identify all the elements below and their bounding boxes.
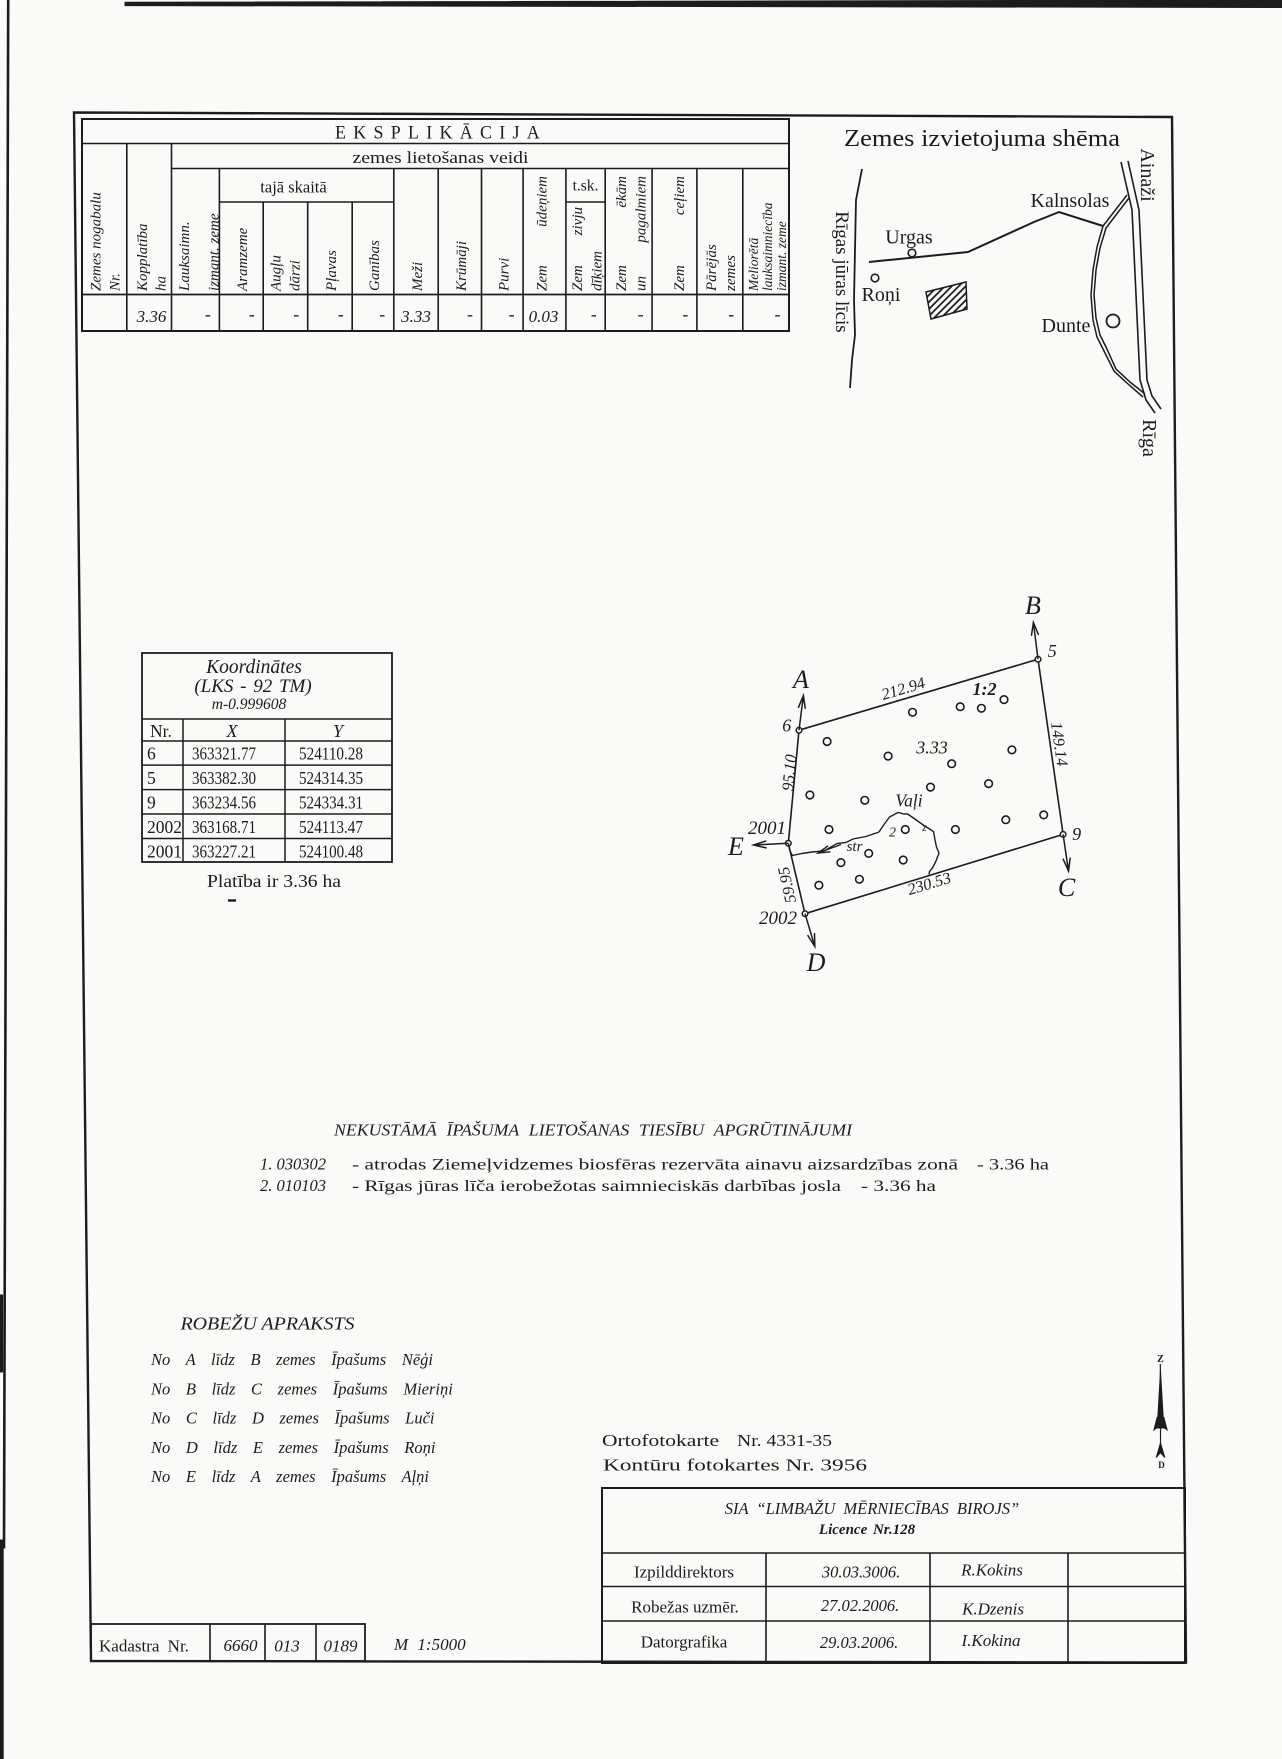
- svg-text:X: X: [226, 721, 239, 741]
- svg-text:Meži: Meži: [410, 262, 426, 292]
- svg-text:363168.71: 363168.71: [192, 817, 256, 837]
- svg-text:363227.21: 363227.21: [192, 842, 256, 862]
- svg-text:-: -: [205, 304, 211, 324]
- svg-text:524113.47: 524113.47: [299, 817, 363, 837]
- svg-text:ROBEŽU APRAKSTS: ROBEŽU APRAKSTS: [179, 1314, 354, 1334]
- svg-text:C: C: [1058, 873, 1076, 902]
- svg-text:1. 030302: 1. 030302: [260, 1155, 326, 1174]
- svg-text:Izpilddirektors: Izpilddirektors: [634, 1563, 734, 1582]
- svg-text:-: -: [682, 304, 688, 324]
- svg-text:27.02.2006.: 27.02.2006.: [821, 1596, 899, 1615]
- svg-text:3.33: 3.33: [400, 307, 431, 326]
- svg-text:363321.77: 363321.77: [192, 744, 256, 764]
- svg-text:6660: 6660: [224, 1636, 259, 1655]
- svg-text:No E līdz A zemes Īpašums: No E līdz A zemes Īpašums Aļņi: [150, 1467, 429, 1486]
- svg-text:t.sk.: t.sk.: [573, 178, 599, 195]
- svg-text:59.95: 59.95: [775, 865, 800, 904]
- svg-text:dārzi: dārzi: [288, 260, 304, 291]
- svg-text:363382.30: 363382.30: [192, 768, 256, 788]
- svg-text:ceļiem: ceļiem: [672, 176, 688, 215]
- svg-text:3.33: 3.33: [915, 738, 948, 758]
- svg-text:2002: 2002: [147, 817, 182, 837]
- svg-text:-: -: [379, 304, 385, 324]
- svg-text:Platība ir 3.36 ha: Platība ir 3.36 ha: [207, 871, 341, 891]
- svg-text:Dunte: Dunte: [1042, 315, 1091, 337]
- svg-text:Rīgas jūras līcis: Rīgas jūras līcis: [831, 211, 852, 332]
- svg-text:Pārējās: Pārējās: [704, 244, 720, 292]
- svg-text:No C līdz D zemes Īpašums: No C līdz D zemes Īpašums Luči: [150, 1409, 435, 1428]
- svg-text:Licence Nr.128: Licence Nr.128: [818, 1522, 916, 1538]
- svg-text:izmant. zeme: izmant. zeme: [207, 213, 223, 291]
- svg-text:-: -: [591, 304, 597, 324]
- svg-text:0189: 0189: [324, 1637, 359, 1656]
- svg-text:No B līdz C zemes Īpašums: No B līdz C zemes Īpašums Mieriņi: [150, 1379, 453, 1398]
- svg-text:NEKUSTĀMĀ ĪPAŠUMA LIETOŠANAS: NEKUSTĀMĀ ĪPAŠUMA LIETOŠANAS TIESĪBU APG…: [333, 1121, 854, 1140]
- svg-text:dīķiem: dīķiem: [590, 251, 606, 291]
- svg-text:0.03: 0.03: [529, 307, 559, 326]
- svg-text:2001: 2001: [748, 818, 786, 839]
- svg-text:Urgas: Urgas: [885, 227, 933, 249]
- svg-text:Koordinātes: Koordinātes: [205, 657, 302, 678]
- svg-text:95.10: 95.10: [779, 754, 800, 792]
- svg-text:izmant. zeme: izmant. zeme: [774, 221, 789, 291]
- svg-text:3.36: 3.36: [136, 307, 167, 326]
- svg-text:1:2: 1:2: [973, 679, 997, 699]
- svg-text:lauksaimniecība: lauksaimniecība: [760, 202, 775, 291]
- svg-text:K.Dzenis: K.Dzenis: [961, 1600, 1024, 1619]
- svg-text:Y: Y: [333, 721, 345, 741]
- svg-text:M 1:5000: M 1:5000: [393, 1635, 466, 1654]
- svg-text:9: 9: [1072, 824, 1081, 844]
- svg-text:R.Kokins: R.Kokins: [960, 1561, 1023, 1580]
- svg-text:Nr. 4331-35: Nr. 4331-35: [737, 1431, 832, 1450]
- svg-text:6: 6: [782, 716, 791, 736]
- svg-text:Kadastra Nr.: Kadastra Nr.: [99, 1637, 189, 1656]
- svg-text:Nr.: Nr.: [108, 273, 124, 292]
- svg-text:Rīga: Rīga: [1138, 419, 1160, 457]
- svg-text:2002: 2002: [759, 908, 798, 929]
- svg-text:(LKS - 92 TM): (LKS - 92 TM): [194, 676, 311, 697]
- svg-text:zemes: zemes: [723, 255, 739, 292]
- svg-text:I.Kokina: I.Kokina: [960, 1631, 1020, 1650]
- svg-text:2. 010103: 2. 010103: [260, 1176, 326, 1195]
- svg-text:Z: Z: [1157, 1354, 1164, 1365]
- svg-text:D: D: [806, 948, 826, 977]
- svg-text:363234.56: 363234.56: [192, 793, 256, 813]
- svg-text:No A līdz B zemes Īpašums: No A līdz B zemes Īpašums Nēģi: [150, 1350, 433, 1369]
- svg-text:E: E: [727, 832, 744, 861]
- svg-text:m-0.999608: m-0.999608: [212, 696, 287, 713]
- svg-text:Zem: Zem: [672, 265, 688, 291]
- svg-text:A: A: [791, 665, 809, 694]
- svg-text:Augļu: Augļu: [269, 255, 285, 292]
- svg-text:SIA “LIMBAŽU MĒRNIECĪBAS BI: SIA “LIMBAŽU MĒRNIECĪBAS BIROJS”: [725, 1499, 1019, 1518]
- svg-text:Zemes izvietojuma shēma: Zemes izvietojuma shēma: [844, 126, 1120, 152]
- svg-text:Zem: Zem: [535, 265, 551, 291]
- svg-text:Lauksaimn.: Lauksaimn.: [177, 221, 193, 292]
- svg-text:6: 6: [147, 744, 156, 764]
- svg-text:-: -: [249, 304, 255, 324]
- svg-text:Zem: Zem: [614, 265, 630, 291]
- svg-text:Kalnsolas: Kalnsolas: [1031, 190, 1110, 212]
- svg-text:Zem: Zem: [570, 265, 586, 291]
- svg-text:Kopplatība: Kopplatība: [135, 223, 151, 292]
- svg-text:2001: 2001: [147, 842, 182, 862]
- svg-text:524100.48: 524100.48: [299, 842, 363, 862]
- svg-text:Roņi: Roņi: [862, 284, 901, 306]
- svg-text:Robežas uzmēr.: Robežas uzmēr.: [631, 1598, 739, 1617]
- svg-text:- 3.36 ha: - 3.36 ha: [861, 1178, 936, 1195]
- svg-text:B: B: [1025, 591, 1041, 620]
- svg-text:- Rīgas jūras līča ierobežo: - Rīgas jūras līča ierobežotas saimnieci…: [352, 1178, 841, 1195]
- svg-text:-: -: [467, 304, 473, 324]
- svg-text:ēkām: ēkām: [614, 176, 630, 208]
- svg-text:524314.35: 524314.35: [299, 768, 363, 788]
- svg-text:ūdeņiem: ūdeņiem: [535, 176, 551, 227]
- svg-text:Vaļi: Vaļi: [895, 791, 922, 811]
- svg-text:Aramzeme: Aramzeme: [235, 227, 251, 292]
- svg-text:tajā skaitā: tajā skaitā: [260, 178, 327, 197]
- svg-text:2: 2: [889, 826, 896, 841]
- svg-text:EKSPLIKĀCIJA: EKSPLIKĀCIJA: [335, 124, 547, 144]
- svg-text:Zemes nogabalu: Zemes nogabalu: [89, 192, 105, 291]
- svg-text:Pļavas: Pļavas: [324, 250, 340, 292]
- svg-text:Kontūru fotokartes Nr. 3956: Kontūru fotokartes Nr. 3956: [603, 1456, 867, 1475]
- svg-text:5: 5: [147, 768, 156, 788]
- svg-text:30.03.3006.: 30.03.3006.: [821, 1563, 900, 1582]
- svg-text:-: -: [338, 304, 344, 324]
- svg-text:Meliorētā: Meliorētā: [746, 238, 761, 292]
- svg-text:149.14: 149.14: [1047, 721, 1071, 768]
- svg-text:zemes lietošanas veidi: zemes lietošanas veidi: [353, 148, 529, 167]
- svg-text:un: un: [634, 276, 650, 291]
- svg-text:Datorgrafika: Datorgrafika: [641, 1633, 728, 1652]
- svg-text:ha: ha: [154, 276, 170, 291]
- svg-text:Ainaži: Ainaži: [1136, 148, 1158, 202]
- svg-text:29.03.2006.: 29.03.2006.: [820, 1633, 898, 1652]
- svg-text:zivju: zivju: [570, 207, 586, 236]
- svg-text:5: 5: [1048, 641, 1057, 661]
- svg-text:-: -: [638, 304, 644, 324]
- svg-text:-: -: [728, 304, 734, 324]
- svg-text:pagalmiem: pagalmiem: [634, 176, 650, 244]
- svg-text:Nr.: Nr.: [150, 721, 172, 741]
- svg-text:Ortofotokarte: Ortofotokarte: [602, 1431, 719, 1450]
- svg-text:9: 9: [147, 793, 156, 813]
- svg-text:- atrodas Ziemeļvidzemes bio: - atrodas Ziemeļvidzemes biosfēras rezer…: [352, 1157, 958, 1174]
- svg-text:- 3.36 ha: - 3.36 ha: [977, 1157, 1049, 1174]
- svg-text:Purvi: Purvi: [497, 258, 513, 292]
- svg-text:No D līdz E zemes Īpašums: No D līdz E zemes Īpašums Roņi: [150, 1438, 436, 1457]
- svg-text:524110.28: 524110.28: [299, 744, 363, 764]
- svg-text:524334.31: 524334.31: [299, 793, 363, 813]
- svg-text:-: -: [509, 304, 515, 324]
- svg-text:-: -: [775, 304, 781, 324]
- svg-text:D: D: [1158, 1460, 1165, 1470]
- svg-text:-: -: [293, 304, 299, 324]
- svg-text:013: 013: [274, 1637, 300, 1656]
- svg-text:Ganības: Ganības: [367, 240, 383, 291]
- svg-text:Krūmāji: Krūmāji: [454, 241, 470, 292]
